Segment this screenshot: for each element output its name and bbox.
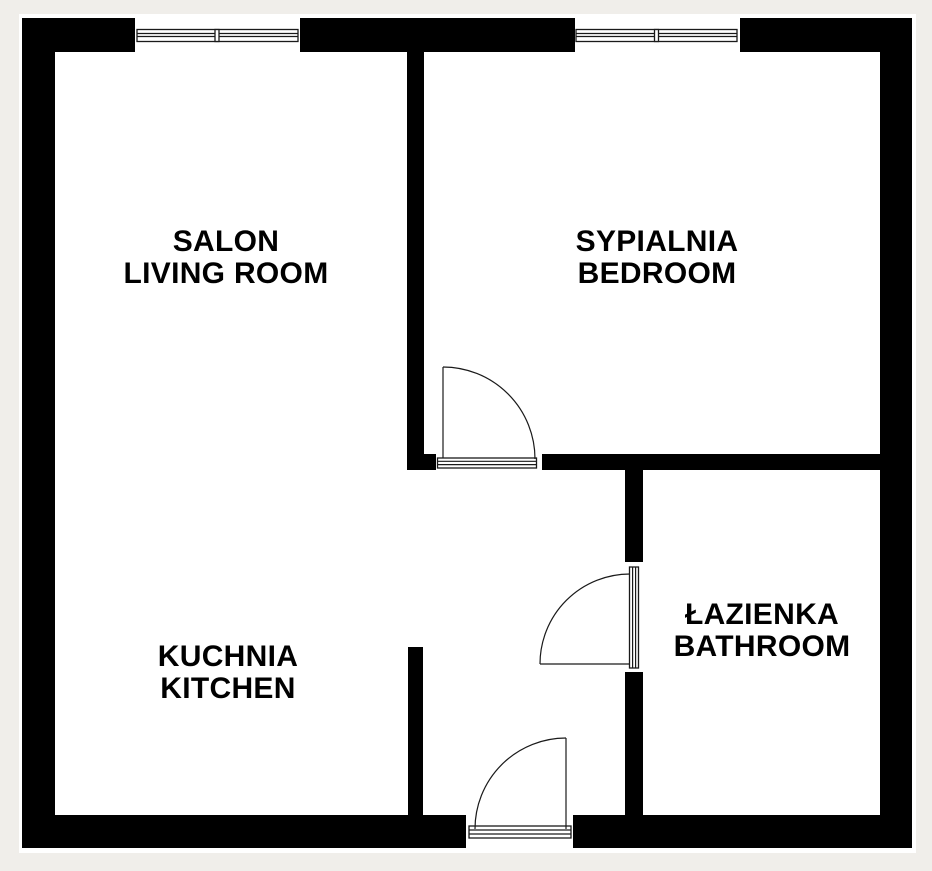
plan-background xyxy=(19,14,916,853)
wall-outer-right xyxy=(880,18,912,848)
label-bedroom: SYPIALNIA BEDROOM xyxy=(576,226,739,290)
wall-bedroom-south xyxy=(542,454,880,470)
label-kitchen: KUCHNIA KITCHEN xyxy=(158,641,298,705)
floor-plan: SALON LIVING ROOM SYPIALNIA BEDROOM KUCH… xyxy=(0,0,932,871)
room-name-pl: ŁAZIENKA xyxy=(674,599,851,631)
room-name-pl: KUCHNIA xyxy=(158,641,298,673)
room-name-en: BATHROOM xyxy=(674,631,851,663)
wall-bathroom-west-upper xyxy=(625,470,643,562)
room-name-pl: SALON xyxy=(124,226,329,258)
room-name-en: LIVING ROOM xyxy=(124,258,329,290)
label-living-room: SALON LIVING ROOM xyxy=(124,226,329,290)
floor-plan-drawing xyxy=(0,0,932,871)
window-bedroom xyxy=(575,14,740,52)
room-name-en: BEDROOM xyxy=(576,258,739,290)
window-living-room xyxy=(135,14,300,52)
wall-kitchen-divider xyxy=(408,647,423,815)
label-bathroom: ŁAZIENKA BATHROOM xyxy=(674,599,851,663)
window-mullion xyxy=(655,30,659,42)
room-name-pl: SYPIALNIA xyxy=(576,226,739,258)
wall-outer-left xyxy=(22,18,55,848)
wall-bathroom-west-lower xyxy=(625,672,643,815)
window-mullion xyxy=(215,30,219,42)
room-name-en: KITCHEN xyxy=(158,673,298,705)
wall-living-bedroom-divider xyxy=(407,52,424,454)
wall-bedroom-door-jamb xyxy=(407,454,436,470)
